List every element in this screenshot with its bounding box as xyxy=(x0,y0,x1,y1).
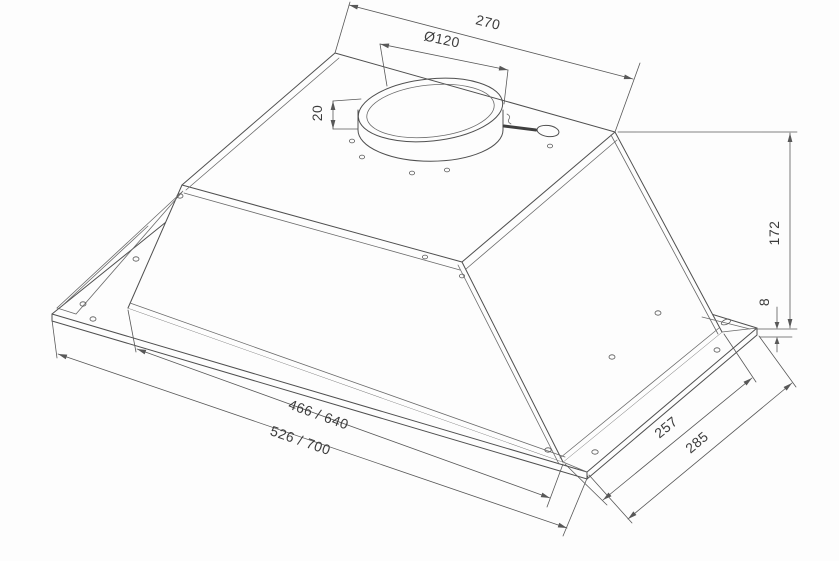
dimension-flange-lip: 8 xyxy=(756,298,792,352)
dim-outer-width-label: 526 / 700 xyxy=(268,422,333,458)
dim-inner-depth-label: 257 xyxy=(651,413,680,441)
dim-flange-lip-label: 8 xyxy=(756,298,772,306)
dim-duct-diameter-label: Ø120 xyxy=(423,28,462,51)
cooker-hood-drawing: 270 Ø120 20 172 8 46 xyxy=(0,0,839,561)
dim-top-depth-label: 270 xyxy=(474,11,502,33)
dim-outer-depth-label: 285 xyxy=(682,428,711,456)
dim-body-height-label: 172 xyxy=(766,221,782,246)
dim-inner-width-label: 466 / 640 xyxy=(286,396,351,433)
canopy-faces xyxy=(128,53,722,462)
dim-collar-height-label: 20 xyxy=(309,105,325,122)
technical-drawing-page: 270 Ø120 20 172 8 46 xyxy=(0,0,839,561)
